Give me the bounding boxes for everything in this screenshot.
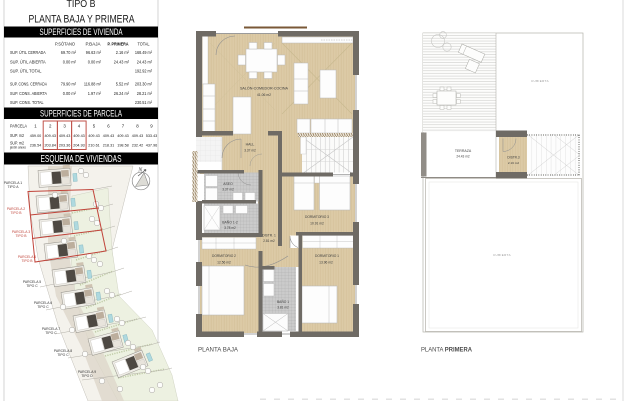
svg-text:203.36: 203.36 (59, 143, 71, 148)
svg-text:PLANTA PRIMERA: PLANTA PRIMERA (421, 347, 472, 354)
svg-text:41.06 m2: 41.06 m2 (257, 93, 271, 97)
svg-text:28.21 m²: 28.21 m² (137, 91, 153, 96)
svg-text:jardín anexo: jardín anexo (9, 146, 26, 150)
svg-text:3.81 m2: 3.81 m2 (277, 306, 289, 310)
svg-text:TIPO B: TIPO B (21, 259, 33, 263)
svg-text:PLANTA BAJA: PLANTA BAJA (198, 347, 239, 354)
svg-text:210.61: 210.61 (88, 143, 100, 148)
svg-text:SUP. CONS. TOTAL: SUP. CONS. TOTAL (10, 100, 44, 105)
svg-text:BAÑO 1: BAÑO 1 (277, 299, 289, 304)
svg-text:2.16 m2: 2.16 m2 (508, 161, 519, 165)
svg-text:203.30 m²: 203.30 m² (135, 82, 152, 87)
svg-text:116.88 m²: 116.88 m² (84, 82, 101, 87)
svg-text:10.91 m2: 10.91 m2 (310, 222, 324, 226)
svg-text:2.81 m2: 2.81 m2 (263, 239, 275, 243)
svg-text:2: 2 (49, 124, 52, 129)
svg-text:3.78 m2: 3.78 m2 (224, 226, 236, 230)
svg-text:TOTAL: TOTAL (138, 42, 150, 47)
svg-text:DISTR. 1: DISTR. 1 (262, 234, 276, 238)
svg-text:0.00 m²: 0.00 m² (63, 91, 77, 96)
svg-text:TIPO C: TIPO C (45, 331, 57, 335)
svg-text:6: 6 (107, 124, 110, 129)
svg-text:5.52 m²: 5.52 m² (116, 82, 130, 87)
svg-text:TIPO B: TIPO B (67, 0, 96, 10)
svg-text:SUP. m2: SUP. m2 (10, 133, 25, 138)
svg-text:26.24 m²: 26.24 m² (114, 91, 130, 96)
svg-text:CUBIERTA: CUBIERTA (493, 253, 511, 257)
svg-text:BAÑO 1-2: BAÑO 1-2 (222, 220, 238, 225)
svg-text:TIPO C: TIPO C (57, 353, 69, 357)
svg-text:SUP. CONS. ABIERTA: SUP. CONS. ABIERTA (10, 91, 48, 96)
svg-text:96.63 m²: 96.63 m² (86, 50, 102, 55)
svg-text:409.43: 409.43 (117, 133, 129, 138)
svg-text:192.92 m²: 192.92 m² (135, 69, 152, 74)
svg-text:TIPO C: TIPO C (26, 284, 38, 288)
svg-text:TIPO B: TIPO B (10, 211, 22, 215)
svg-text:24.43 m²: 24.43 m² (114, 60, 130, 65)
svg-text:1: 1 (34, 124, 37, 129)
svg-text:203.84: 203.84 (44, 143, 56, 148)
svg-text:DORMITORIO 3: DORMITORIO 3 (305, 215, 329, 219)
svg-text:409.43: 409.43 (88, 133, 100, 138)
svg-text:409.43: 409.43 (103, 133, 115, 138)
svg-text:7: 7 (122, 124, 125, 129)
svg-text:79.90 m²: 79.90 m² (61, 82, 77, 87)
svg-text:24.43 m2: 24.43 m2 (456, 155, 470, 159)
svg-text:SUPERFICIES DE PARCELA: SUPERFICIES DE PARCELA (40, 109, 122, 119)
svg-text:3.37 m2: 3.37 m2 (244, 149, 256, 153)
svg-text:232.42: 232.42 (132, 143, 144, 148)
svg-text:3: 3 (63, 124, 66, 129)
svg-text:409.43: 409.43 (73, 133, 85, 138)
svg-text:533.43: 533.43 (146, 133, 158, 138)
svg-text:4: 4 (78, 124, 81, 129)
svg-text:0.00 m²: 0.00 m² (63, 60, 77, 65)
svg-text:CUBIERTA: CUBIERTA (531, 79, 549, 83)
svg-text:230.51 m²: 230.51 m² (135, 100, 152, 105)
svg-text:13.96 m2: 13.96 m2 (319, 261, 333, 265)
svg-text:SALÓN-COMEDOR-COCINA: SALÓN-COMEDOR-COCINA (240, 86, 289, 91)
svg-text:DORMITORIO 1: DORMITORIO 1 (315, 254, 339, 258)
svg-text:459.00: 459.00 (30, 133, 42, 138)
svg-text:409.43: 409.43 (44, 133, 56, 138)
svg-text:TERRAZA: TERRAZA (455, 149, 472, 153)
svg-text:DORMITORIO 2: DORMITORIO 2 (212, 254, 236, 258)
svg-text:218.31: 218.31 (103, 143, 115, 148)
svg-text:DISTR.3: DISTR.3 (507, 156, 519, 160)
svg-text:P.BAJA: P.BAJA (86, 42, 102, 47)
svg-text:9: 9 (150, 124, 153, 129)
svg-text:204.93: 204.93 (73, 143, 85, 148)
svg-text:PARCELA: PARCELA (10, 124, 27, 129)
svg-text:HALL: HALL (246, 143, 255, 147)
svg-text:24.43 m²: 24.43 m² (137, 60, 153, 65)
svg-text:TIPO B: TIPO B (15, 234, 27, 238)
svg-text:198.58: 198.58 (117, 143, 129, 148)
svg-text:TIPO D: TIPO D (81, 374, 93, 378)
svg-text:TIPO A: TIPO A (8, 185, 20, 189)
svg-text:1.97 m²: 1.97 m² (88, 91, 102, 96)
svg-text:TIPO C: TIPO C (37, 305, 49, 309)
svg-text:168.49 m²: 168.49 m² (135, 50, 152, 55)
svg-text:8: 8 (136, 124, 139, 129)
svg-text:12.56 m2: 12.56 m2 (217, 261, 231, 265)
svg-text:ASEO: ASEO (223, 182, 233, 186)
svg-text:437.96: 437.96 (146, 143, 158, 148)
svg-text:409.43: 409.43 (132, 133, 144, 138)
svg-text:SUP. ÚTIL CERRADA: SUP. ÚTIL CERRADA (10, 49, 46, 55)
svg-text:236.54: 236.54 (30, 143, 42, 148)
svg-text:3.37 m2: 3.37 m2 (222, 188, 234, 192)
svg-text:ESQUEMA DE VIVIENDAS: ESQUEMA DE VIVIENDAS (41, 154, 122, 165)
svg-text:P.SÓTANO: P.SÓTANO (55, 41, 75, 47)
svg-text:0.00 m²: 0.00 m² (88, 60, 102, 65)
svg-text:SUPERFICIES DE VIVIENDA: SUPERFICIES DE VIVIENDA (40, 27, 123, 37)
svg-text:69.70 m²: 69.70 m² (61, 50, 77, 55)
svg-text:SUP. ÚTIL TOTAL: SUP. ÚTIL TOTAL (10, 68, 42, 74)
svg-text:409.43: 409.43 (59, 133, 71, 138)
svg-text:2.16 m²: 2.16 m² (116, 50, 130, 55)
svg-text:PLANTA BAJA Y PRIMERA: PLANTA BAJA Y PRIMERA (29, 14, 136, 26)
svg-text:P. PRIMERA: P. PRIMERA (108, 42, 130, 47)
svg-text:5: 5 (93, 124, 96, 129)
svg-text:SUP. ÚTIL ABIERTA: SUP. ÚTIL ABIERTA (10, 59, 46, 65)
svg-text:SUP. CONS. CERRADA: SUP. CONS. CERRADA (10, 82, 48, 87)
